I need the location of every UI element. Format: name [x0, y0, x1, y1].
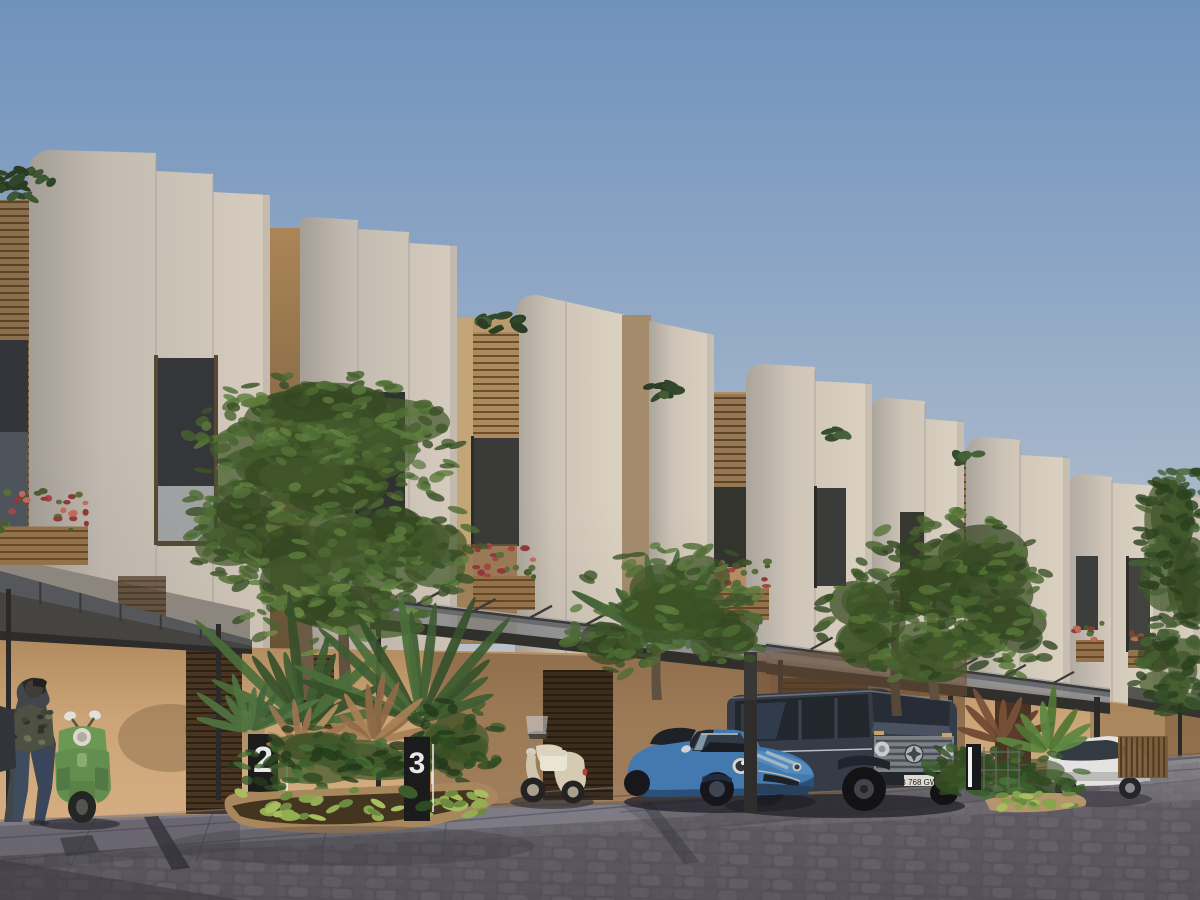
svg-text:B 768 GW: B 768 GW [901, 778, 938, 787]
svg-text:3: 3 [409, 747, 426, 780]
